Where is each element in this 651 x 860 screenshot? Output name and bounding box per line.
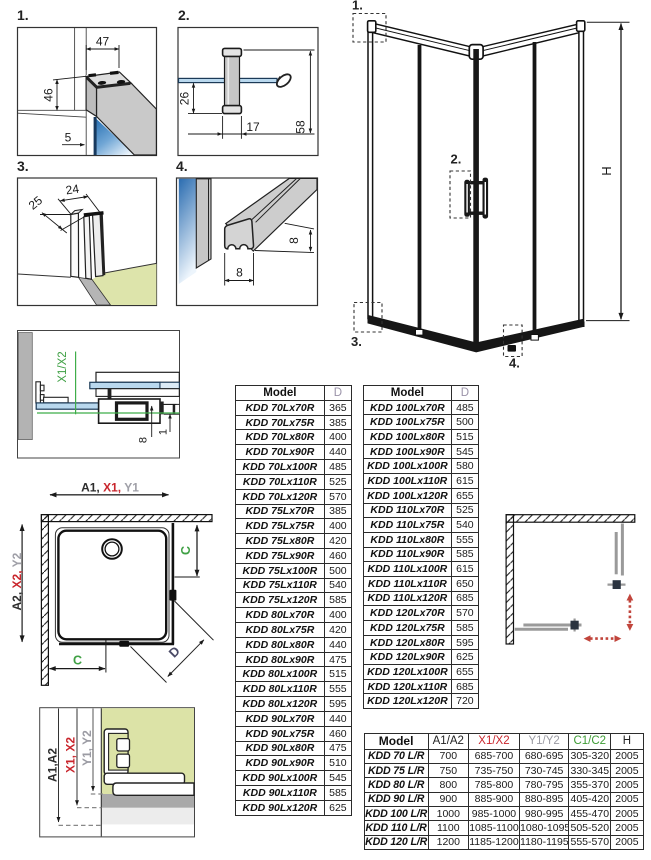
- svg-text:C: C: [179, 546, 193, 555]
- svg-text:4.: 4.: [509, 356, 520, 371]
- svg-text:C: C: [73, 654, 82, 668]
- svg-text:Y1, Y2: Y1, Y2: [80, 730, 94, 766]
- svg-text:1.: 1.: [17, 7, 29, 23]
- svg-text:2.: 2.: [178, 7, 190, 23]
- svg-text:D: D: [166, 643, 183, 660]
- svg-text:8: 8: [287, 237, 301, 244]
- svg-text:H: H: [599, 166, 614, 175]
- svg-text:17: 17: [246, 120, 260, 134]
- svg-text:A2, X2, Y2: A2, X2, Y2: [10, 552, 24, 610]
- svg-text:26: 26: [178, 92, 192, 106]
- svg-text:5: 5: [65, 131, 72, 145]
- svg-text:3.: 3.: [17, 158, 29, 174]
- svg-text:4.: 4.: [176, 158, 188, 174]
- svg-text:8: 8: [236, 266, 243, 280]
- svg-text:58: 58: [294, 120, 308, 134]
- svg-text:A1,A2: A1,A2: [45, 748, 59, 782]
- svg-text:X1/X2: X1/X2: [57, 351, 69, 382]
- svg-text:2.: 2.: [451, 152, 462, 167]
- svg-text:X1, X2: X1, X2: [64, 737, 78, 773]
- svg-text:8: 8: [138, 437, 150, 443]
- svg-text:3.: 3.: [351, 334, 362, 349]
- svg-text:24: 24: [65, 182, 81, 198]
- svg-text:46: 46: [42, 88, 56, 102]
- svg-text:A1, X1, Y1: A1, X1, Y1: [81, 481, 139, 495]
- svg-text:47: 47: [96, 35, 110, 49]
- svg-text:1: 1: [158, 429, 170, 435]
- svg-text:1.: 1.: [352, 0, 363, 13]
